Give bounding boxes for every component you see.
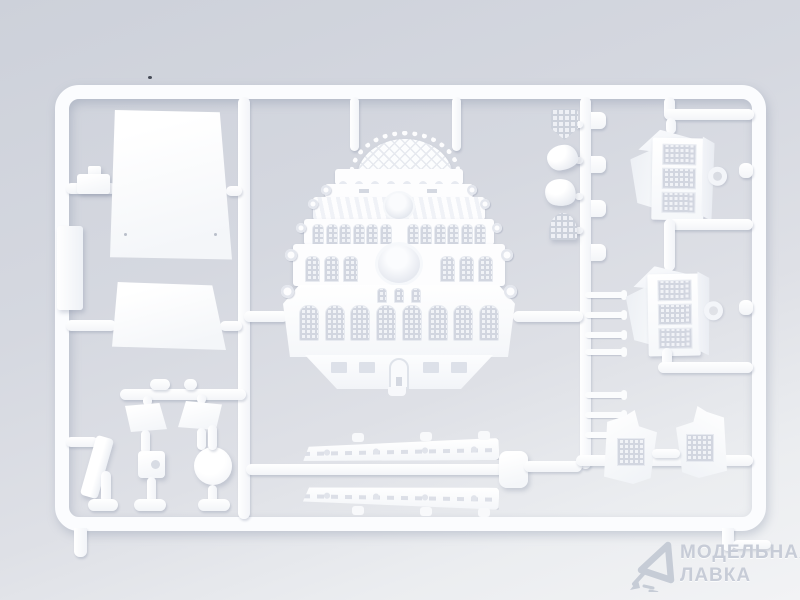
window-pane [411, 288, 421, 303]
window-pane [380, 224, 392, 245]
window-pane [343, 256, 358, 282]
window-pane [459, 256, 474, 282]
window-pane [305, 256, 320, 282]
runner-gallery-bottom [658, 362, 753, 373]
runner-tab [591, 244, 606, 261]
runner-lower-left [120, 389, 246, 400]
band-slot [427, 189, 437, 193]
window-pane [326, 224, 338, 245]
window-pane [324, 256, 339, 282]
strip-tab [352, 433, 364, 442]
runner-panel2-right [220, 321, 242, 331]
quarter-gallery-lower [625, 265, 715, 361]
window-pane [407, 224, 419, 245]
runner-stub [197, 428, 206, 450]
dust-speck [148, 76, 152, 79]
quarter-gallery-upper [629, 129, 719, 225]
runner-stub [208, 425, 217, 450]
railing-rung [585, 349, 625, 355]
keel-stub [388, 387, 406, 396]
window-pane [353, 224, 365, 245]
window-pane [686, 434, 714, 462]
volute-curl [501, 249, 513, 261]
runner-mid-horizontal [246, 464, 504, 475]
runner-tab [591, 156, 606, 173]
panel-pin-mark [214, 233, 217, 236]
volute-curl [308, 199, 318, 209]
round-disc [194, 447, 232, 485]
window-pane [434, 224, 446, 245]
railing-rung [585, 312, 625, 318]
volute-curl [321, 185, 331, 195]
sprue-photo: МОДЕЛЬНАЯ ЛАВКА [0, 0, 800, 600]
strip-tab [420, 507, 432, 516]
window-pane [474, 224, 486, 245]
watermark-line1: МОДЕЛЬНАЯ [680, 542, 800, 564]
stern-window-row-main [299, 305, 499, 341]
runner-ship-right [513, 311, 583, 322]
gallery-window-face [651, 138, 704, 221]
rudder-port-arch [389, 358, 409, 389]
window-pane [479, 305, 499, 341]
window-pane [658, 328, 692, 350]
railing-rung [585, 332, 625, 338]
volute-curl [296, 223, 306, 233]
gallery-window-face [647, 273, 700, 356]
volute-curl [281, 285, 294, 298]
watermark-line2: ЛАВКА [680, 565, 751, 587]
railing-rung [585, 392, 625, 398]
stern-tiny-windows [283, 288, 515, 303]
runner-tab [184, 379, 197, 390]
runner-stub [575, 193, 583, 200]
window-pane [394, 288, 404, 303]
window-pane [440, 256, 455, 282]
runner-gallery-connector [664, 219, 675, 271]
clip-fitting [77, 174, 110, 194]
railing-rung [585, 292, 625, 298]
window-pane [377, 288, 387, 303]
window-pane [662, 144, 696, 166]
runner-vertical-left-center [238, 97, 250, 519]
panel-pin-mark [124, 233, 127, 236]
strip-tab [478, 431, 490, 440]
strip-tab [478, 508, 490, 517]
runner-tab [591, 112, 606, 129]
gunport [451, 362, 467, 373]
rail-tab [739, 163, 753, 178]
gunport [359, 362, 375, 373]
stern-cartouche [378, 245, 420, 283]
volute-curl [504, 285, 517, 298]
window-pane [453, 305, 473, 341]
runner-panel2-left [66, 320, 116, 331]
runner-tab [591, 200, 606, 217]
window-pane [366, 224, 378, 245]
window-pane [661, 192, 695, 214]
window-pane [617, 438, 645, 466]
runner-foot [88, 499, 118, 511]
railing-rung [585, 412, 625, 418]
window-pane [447, 224, 459, 245]
stern-cartouche-band [293, 244, 505, 286]
gunport [423, 362, 439, 373]
window-pane [662, 168, 696, 190]
volute-curl [480, 199, 490, 209]
gunport [331, 362, 347, 373]
window-pane [339, 224, 351, 245]
sprue-gate-stub [74, 528, 87, 557]
window-pane [402, 305, 422, 341]
stern-arcade-band [335, 169, 463, 185]
window-pane [461, 224, 473, 245]
strip-tab [352, 506, 364, 515]
window-pane [299, 305, 319, 341]
window-pane [420, 224, 432, 245]
window-pane [325, 305, 345, 341]
large-deck-panel [110, 110, 232, 261]
flag-trapezoid-left [125, 403, 167, 432]
stern-hull-flare [283, 285, 515, 357]
stern-transom-plate [283, 139, 515, 391]
runner-gallery-mid [668, 219, 753, 230]
window-pane [428, 305, 448, 341]
window-pane [657, 280, 691, 302]
volute-curl [285, 249, 297, 261]
runner-tab [150, 379, 170, 390]
runner-ship-left [244, 311, 288, 322]
side-plank [57, 226, 83, 310]
watermark: МОДЕЛЬНАЯ ЛАВКА [628, 536, 800, 596]
stern-drapery-band [313, 197, 485, 220]
runner-stub [652, 449, 680, 458]
square-fitting [138, 451, 165, 478]
runner-foot [134, 499, 166, 511]
window-pane [376, 305, 396, 341]
window-pane [658, 304, 692, 326]
window-pane [478, 256, 493, 282]
triangle-pick-logo-icon [628, 538, 676, 592]
runner-mid-horizontal-2 [524, 461, 582, 472]
strip-tab [420, 432, 432, 441]
window-pane [350, 305, 370, 341]
window-pane [312, 224, 324, 245]
stern-lower-counter [305, 355, 493, 389]
runner-panel1-right [226, 186, 242, 196]
volute-curl [467, 185, 477, 195]
rail-tab [739, 300, 753, 315]
volute-curl [492, 223, 502, 233]
runner-gallery-top [664, 109, 754, 120]
fitting-hole [151, 460, 160, 469]
runner-junction-block [499, 451, 528, 488]
runner-foot [198, 499, 230, 511]
stern-window-row-upper [304, 219, 494, 245]
small-deck-panel [112, 282, 226, 350]
band-slot [359, 189, 369, 193]
